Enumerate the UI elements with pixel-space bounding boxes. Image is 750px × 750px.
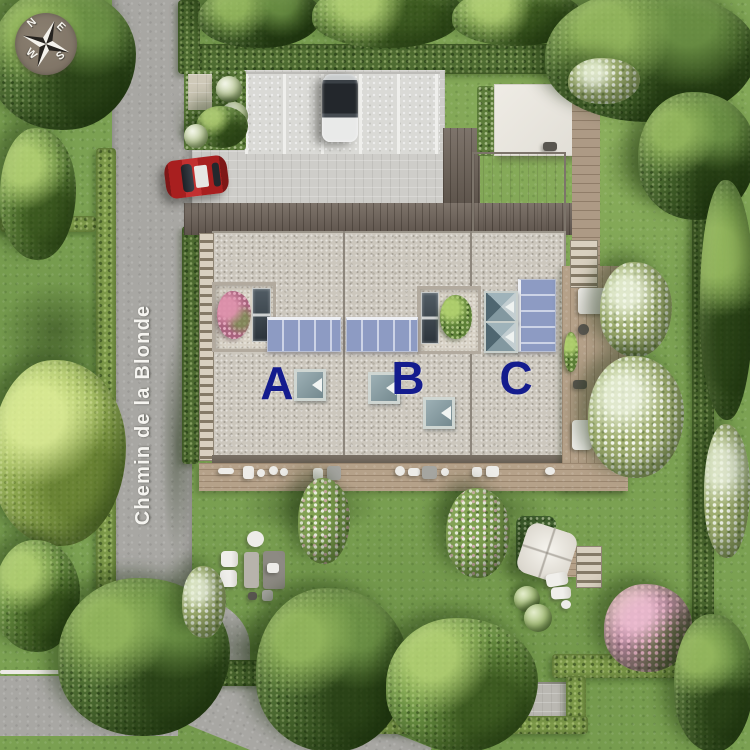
unit-divider-ab [343, 231, 345, 463]
tree [0, 128, 76, 260]
green-plant [440, 295, 472, 339]
terrace-furniture [422, 466, 437, 479]
pyramid-skylight [484, 291, 518, 323]
flowering-shrub [446, 488, 510, 578]
hedge-building-west [182, 226, 199, 464]
garden-object [262, 590, 273, 601]
pyramid-skylight [484, 321, 518, 353]
parking-stall-line [435, 74, 438, 154]
hedge [178, 0, 200, 74]
site-plan-canvas: Chemin de la Blonde A B C N E S W [0, 0, 750, 750]
terrace-furniture [280, 468, 288, 476]
sun-lounger [551, 586, 572, 599]
deck-bench [573, 380, 587, 389]
tree [674, 614, 750, 750]
sun-lounger [545, 571, 569, 588]
flowering-tree [588, 356, 684, 478]
parking-stall-line [283, 74, 286, 154]
sun-lounger [221, 551, 238, 567]
flowering-shrubs [568, 58, 640, 104]
unit-label-c: C [493, 353, 539, 403]
street-name: Chemin de la Blonde [132, 305, 155, 526]
unit-c-north-roof [472, 152, 566, 238]
garden-object [248, 592, 257, 600]
outdoor-rug [244, 552, 259, 588]
topiary-bush [184, 124, 208, 148]
pink-flowering-plant [217, 291, 251, 339]
terrace-furniture [257, 469, 265, 477]
tree [386, 618, 538, 750]
terrace-furniture [441, 468, 449, 476]
car-roof [193, 165, 209, 188]
tree [256, 588, 408, 750]
compass-star [15, 13, 77, 75]
topiary-bush [524, 604, 552, 632]
unit-label-b: B [385, 353, 431, 403]
fire-bowl [578, 324, 589, 335]
terrace-furniture [408, 468, 420, 476]
solar-panel-array-c [518, 279, 556, 352]
solar-panel-array-a [267, 317, 341, 352]
topiary-bush [216, 76, 242, 102]
terrace-furniture [395, 466, 405, 476]
garden-table [267, 563, 279, 573]
doormat [543, 142, 557, 151]
car-rear-window [211, 162, 221, 187]
red-car [163, 154, 230, 199]
parking-stall-line [359, 74, 362, 154]
terrace-furniture [472, 467, 482, 477]
terrace-furniture [327, 466, 341, 480]
side-table [561, 600, 571, 609]
terrace-furniture [218, 468, 234, 474]
courtyard-b-window [421, 292, 439, 344]
parking-stall-line [397, 74, 400, 154]
terrace-furniture [243, 466, 254, 479]
flowering-tree [600, 262, 672, 357]
unit-label-a: A [254, 358, 300, 408]
tree [700, 180, 750, 420]
potted-grass [564, 332, 578, 372]
terrace-furniture [486, 466, 499, 477]
flowering-shrubs [704, 424, 750, 558]
terrace-furniture [269, 466, 278, 475]
garden-steps [570, 240, 598, 288]
street-label: Chemin de la Blonde [128, 315, 158, 515]
parked-car [322, 74, 358, 142]
tree [312, 0, 464, 48]
planting-strip [477, 86, 494, 156]
courtyard-b [417, 286, 481, 354]
solar-panel-array-b [346, 317, 418, 352]
garden-steps [576, 546, 602, 588]
tree [198, 0, 322, 48]
terrace-furniture [545, 467, 555, 475]
compass-rose-icon: N E S W [15, 13, 77, 75]
flowering-shrub [298, 478, 350, 564]
gravel-bed [188, 74, 212, 110]
garden-pouf [247, 531, 264, 547]
flowering-tree [182, 566, 226, 638]
